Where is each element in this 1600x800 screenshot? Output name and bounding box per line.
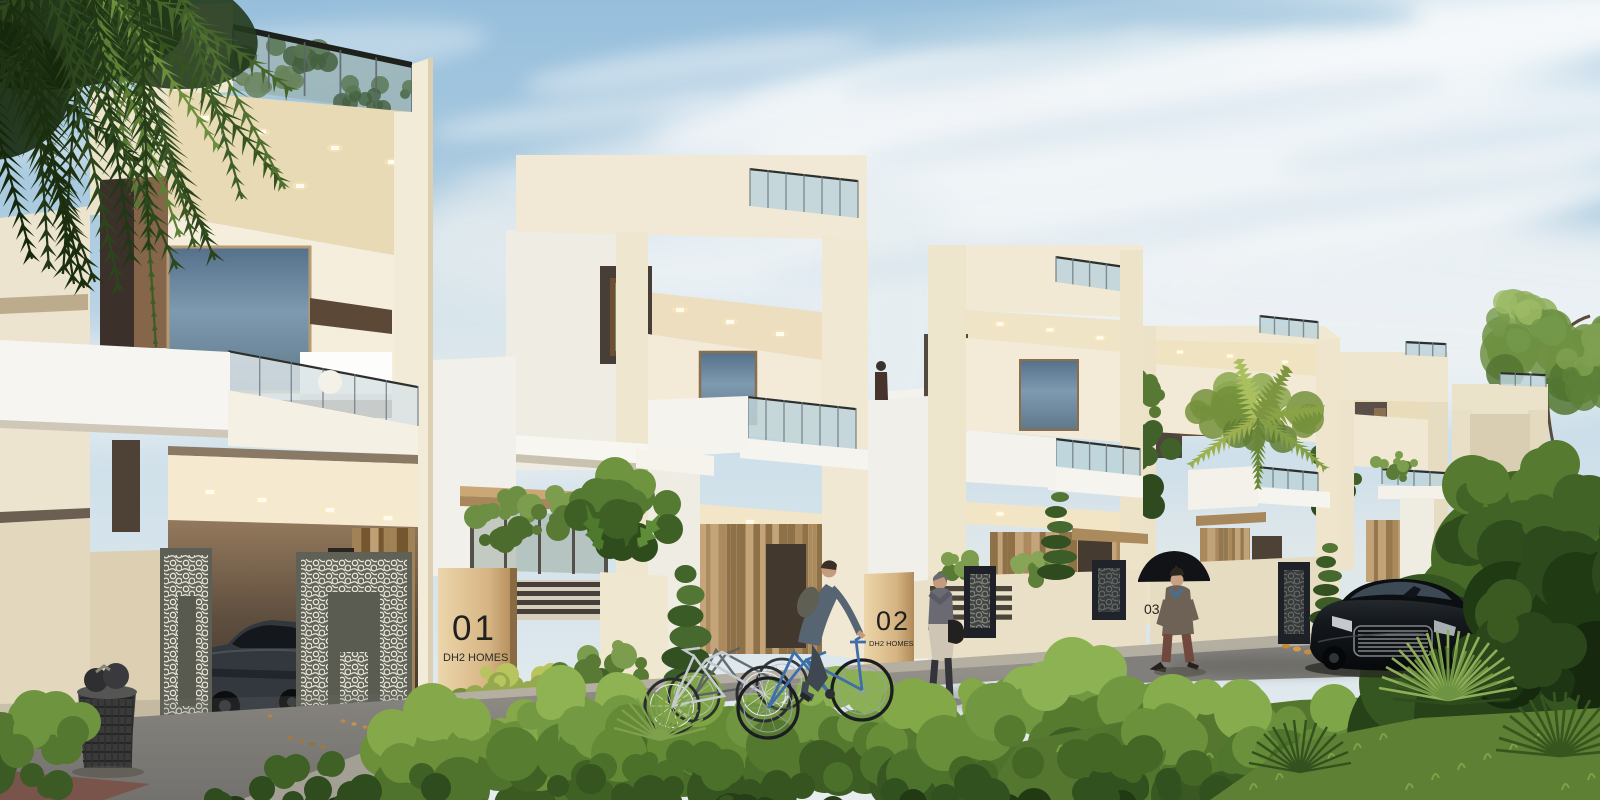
svg-text:01: 01 xyxy=(452,609,497,648)
svg-text:DH2 HOMES: DH2 HOMES xyxy=(869,639,914,648)
svg-text:DH2 HOMES: DH2 HOMES xyxy=(443,652,508,664)
svg-text:03: 03 xyxy=(1144,601,1160,617)
svg-text:02: 02 xyxy=(876,606,910,636)
